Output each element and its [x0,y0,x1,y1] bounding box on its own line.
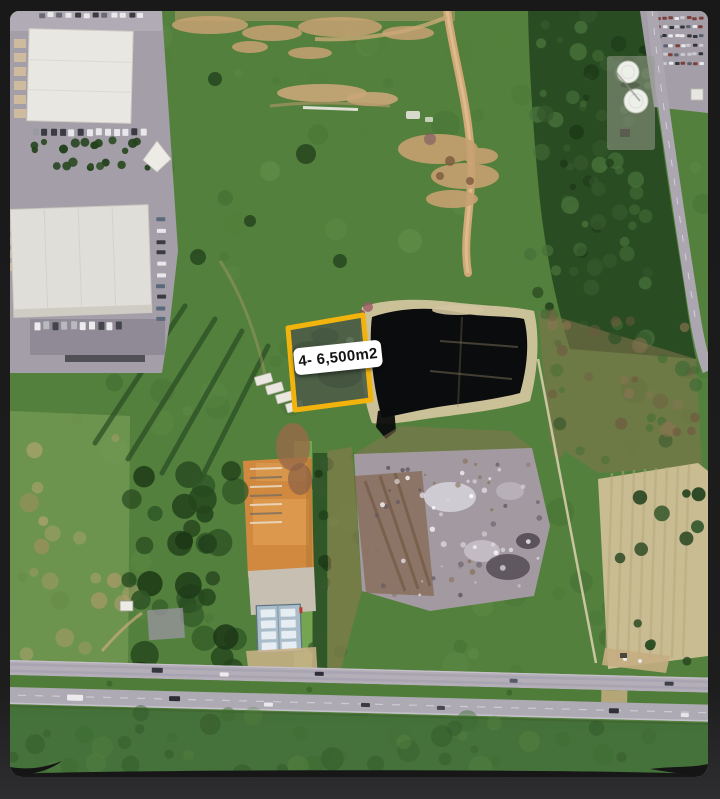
texture-dot [563,144,571,152]
texture-dot [634,542,648,556]
texture-dot [672,399,683,410]
texture-dot [521,484,526,489]
vehicle-dot [61,322,67,330]
texture-dot [590,611,605,626]
texture-dot [566,91,580,105]
texture-dot [478,475,482,479]
texture-dot [626,316,635,325]
texture-dot [629,204,640,215]
texture-dot [573,243,587,257]
texture-dot [418,489,421,492]
vehicle-dot [80,322,86,330]
texture-dot [488,477,491,480]
texture-dot [601,456,610,465]
texture-dot [641,729,657,745]
texture-dot [536,515,542,521]
texture-dot [405,467,410,472]
texture-dot [59,145,68,154]
texture-dot [559,387,565,393]
texture-dot [494,550,499,555]
texture-dot [675,361,691,377]
texture-dot [234,69,242,77]
texture-dot [270,356,282,368]
texture-dot [573,155,588,170]
texture-dot [53,162,61,170]
texture-dot [487,481,490,484]
texture-dot [122,489,142,509]
dirt-patch [276,423,310,471]
texture-dot [540,90,547,97]
texture-dot [441,565,443,567]
texture-dot [476,562,482,568]
vehicle-dot [693,44,698,47]
texture-dot [319,584,328,593]
texture-dot [43,729,51,737]
vehicle-dot [680,34,685,37]
texture-dot [482,531,487,536]
texture-dot [96,162,104,170]
texture-dot [206,571,220,585]
vehicle-dot [693,25,698,28]
texture-dot [234,155,251,172]
vehicle-dot [662,17,667,20]
texture-dot [683,657,692,666]
texture-dot [325,218,347,240]
texture-dot [682,489,691,498]
texture-dot [537,557,540,560]
texture-dot [589,720,605,736]
texture-dot [689,378,702,391]
texture-dot [20,647,34,661]
vehicle-dot [699,34,704,37]
texture-dot [218,190,233,205]
vehicle-dot [663,53,668,56]
texture-dot [407,591,411,595]
vehicle-dot [122,129,128,136]
vehicle-dot [93,13,99,18]
texture-dot [55,628,74,647]
texture-dot [432,576,436,580]
texture-dot [32,147,38,153]
texture-dot [459,567,461,569]
texture-dot [680,323,690,333]
vehicle-dot [41,129,47,136]
texture-dot [583,94,590,101]
texture-dot [91,592,108,609]
texture-dot [557,345,568,356]
texture-dot [562,321,571,330]
vehicle-dot [39,13,45,18]
texture-dot [432,506,436,510]
texture-dot [221,461,241,481]
texture-dot [20,493,39,512]
texture-dot [653,394,668,409]
vehicle-dot [111,13,117,18]
texture-dot [222,478,249,505]
vehicle-dot [141,129,147,136]
texture-dot [446,498,450,502]
parcel-area-text: 4- 6,500m2 [297,345,378,370]
texture-dot [526,463,531,468]
texture-dot [632,376,638,382]
texture-dot [536,500,540,504]
texture-dot [509,548,513,552]
texture-dot [570,184,577,191]
vehicle-dot [693,35,698,38]
texture-dot [372,578,374,580]
texture-dot [26,442,42,458]
vehicle-dot [668,44,673,47]
texture-dot [441,541,447,547]
vehicle-dot [692,52,697,55]
vehicle-dot [157,250,166,254]
texture-dot [460,471,465,476]
texture-dot [41,139,47,145]
vehicle-dot [137,13,143,18]
texture-dot [634,619,642,627]
texture-dot [449,577,455,583]
texture-dot [383,78,393,88]
texture-dot [524,248,536,260]
vehicle-dot [687,16,692,19]
vehicle-dot [663,44,668,47]
vehicle-dot [681,44,686,47]
vehicle-dot [157,295,166,299]
texture-dot [500,565,506,571]
vehicle-dot [699,17,704,20]
texture-dot [400,468,404,472]
texture-dot [511,84,532,105]
texture-dot [553,417,566,430]
texture-dot [394,479,399,484]
texture-dot [639,277,652,290]
texture-dot [375,513,379,517]
texture-dot [90,573,101,584]
vehicle-dot [681,62,686,65]
texture-dot [381,583,386,588]
texture-dot [587,261,602,276]
vehicle-dot [699,62,704,65]
texture-dot [647,639,656,648]
texture-dot [455,482,461,488]
texture-dot [418,594,421,597]
texture-dot [196,505,213,522]
texture-dot [386,466,390,470]
vehicle-dot [53,322,59,330]
vehicle-dot [699,44,704,47]
warehouse-roof-2 [10,205,152,318]
industrial-complex [10,11,178,373]
texture-dot [687,427,696,436]
curl-strip [10,770,708,777]
texture-dot [583,280,599,296]
vehicle-dot [675,62,680,65]
vehicle-dot [692,17,697,20]
texture-dot [133,705,149,721]
texture-dot [589,325,601,337]
small-building [691,89,703,100]
texture-dot [496,463,500,467]
texture-dot [294,726,309,741]
texture-dot [468,560,472,564]
vehicle-dot [698,25,703,28]
vehicle-dot [157,262,166,266]
vehicle-dot [687,62,692,65]
vehicle-dot [156,217,165,221]
texture-dot [167,733,177,743]
texture-dot [584,372,593,381]
texture-dot [492,33,512,53]
vehicle-dot [668,16,673,19]
texture-dot [487,716,502,731]
texture-dot [133,466,155,488]
texture-dot [316,487,328,499]
vehicle-dot [101,13,107,18]
texture-dot [628,221,637,230]
vehicle-dot [663,25,668,28]
texture-dot [430,527,435,532]
texture-dot [388,489,390,491]
texture-dot [468,648,479,659]
texture-dot [658,354,668,364]
texture-dot [466,480,469,483]
texture-dot [474,581,476,583]
texture-dot [107,573,122,588]
texture-dot [454,640,467,653]
texture-dot [73,531,86,544]
texture-dot [187,73,205,91]
vehicle-dot [120,13,126,18]
texture-dot [29,568,38,577]
texture-dot [458,561,464,567]
dock-yard [30,319,165,355]
vehicle-dot [687,53,692,56]
texture-dot [569,267,579,277]
vehicle-dot [68,129,74,136]
texture-dot [38,516,48,526]
texture-dot [88,163,94,169]
vehicle-dot [116,322,122,330]
vehicle-dot [157,229,166,233]
dirt-patch-2 [288,463,312,495]
texture-dot [315,421,328,434]
texture-dot [690,413,699,422]
vehicle-dot [33,129,39,136]
vehicle-dot [681,53,686,56]
texture-dot [612,204,628,220]
texture-dot [75,725,93,743]
texture-dot [470,569,476,575]
texture-dot [628,172,644,188]
texture-dot [272,76,281,85]
texture-dot [501,548,506,553]
texture-dot [439,512,443,516]
texture-dot [632,338,648,354]
texture-dot [690,162,702,174]
texture-dot [380,502,385,507]
texture-dot [691,520,704,533]
vehicle-dot [668,53,673,56]
vehicle-dot [114,129,120,136]
texture-dot [491,521,497,527]
vehicle-dot [674,53,679,56]
vehicle-dot [680,16,685,19]
vehicle-dot [668,34,673,37]
vehicle-dot [662,34,667,37]
vehicle-dot [89,322,95,330]
vehicle-dot [105,129,111,136]
texture-dot [433,482,436,485]
vehicle-dot [84,13,90,18]
texture-dot [420,492,426,498]
texture-dot [131,551,152,572]
photo-bottom-curl [10,744,708,777]
vehicle-dot [669,62,674,65]
texture-dot [447,721,462,736]
texture-dot [647,413,656,422]
vehicle-dot [675,17,680,20]
vehicle-dot [48,12,54,17]
vehicle-dot [699,52,704,55]
texture-dot [473,479,477,483]
vehicle-dot [156,317,165,321]
texture-dot [608,331,621,344]
texture-dot [491,542,495,546]
texture-dot [503,504,507,508]
texture-dot [646,391,654,399]
median-crossover [601,690,627,703]
texture-dot [463,459,468,464]
texture-dot [592,50,604,62]
texture-dot [692,487,706,501]
texture-dot [605,159,614,168]
texture-dot [615,553,626,564]
texture-dot [122,148,128,154]
texture-dot [611,36,627,52]
texture-dot [78,642,91,655]
texture-dot [405,476,410,481]
texture-dot [633,490,647,504]
texture-dot [576,446,585,455]
vehicle-dot [675,44,680,47]
texture-dot [497,468,501,472]
vehicle-dot [60,129,66,136]
vehicle-dot [87,129,93,136]
texture-dot [602,253,617,268]
texture-dot [551,265,561,275]
vehicle-dot [670,26,675,29]
texture-dot [42,573,59,590]
texture-dot [482,488,488,494]
texture-dot [611,316,622,327]
texture-dot [541,20,550,29]
texture-dot [561,196,579,214]
texture-dot [537,105,554,122]
texture-dot [460,542,466,548]
texture-dot [589,177,599,187]
texture-dot [32,482,44,494]
texture-dot [615,166,624,175]
texture-dot [109,136,117,144]
texture-dot [654,506,670,522]
texture-dot [314,632,327,645]
texture-dot [424,474,426,476]
texture-dot [646,424,654,432]
texture-dot [421,580,423,582]
texture-dot [550,364,563,377]
texture-dot [548,389,557,398]
app-root: { "image": { "kind": "aerial-satellite-p… [0,0,720,799]
texture-dot [560,160,568,168]
texture-dot [396,500,400,504]
texture-dot [200,714,221,735]
texture-dot [315,470,323,478]
texture-dot [526,539,531,544]
vehicle-dot [96,128,102,135]
texture-dot [204,613,214,623]
texture-dot [639,209,653,223]
vehicle-dot [156,307,165,311]
texture-dot [183,520,200,537]
texture-dot [596,110,608,122]
vehicle-dot [71,321,77,329]
texture-dot [45,526,61,542]
vehicle-dot [66,13,72,18]
texture-dot [213,624,238,649]
texture-dot [317,479,326,488]
texture-dot [131,590,151,610]
vehicle-dot [35,322,41,330]
texture-dot [458,593,463,598]
vehicle-dot [75,13,81,18]
texture-dot [536,38,546,48]
texture-dot [569,125,584,140]
texture-dot [68,158,77,167]
vehicle-dot [686,44,691,47]
texture-dot [308,124,328,144]
texture-dot [117,161,125,169]
vehicle-dot [106,322,112,330]
texture-dot [375,548,379,552]
gray-pad [147,608,185,640]
blue-roof-building [256,604,304,653]
texture-dot [590,214,606,230]
vehicle-dot [156,284,165,288]
vehicle-dot [686,25,691,28]
texture-dot [401,559,406,564]
texture-dot [473,545,477,549]
dark-strip [65,355,145,362]
texture-dot [570,43,587,60]
vehicle-dot [675,34,680,37]
texture-dot [359,128,367,136]
texture-dot [175,572,202,599]
vehicle-dot [51,129,57,136]
vehicle-dot [693,62,698,65]
texture-dot [136,537,154,555]
texture-dot [80,138,89,147]
vehicle-dot [43,321,49,329]
texture-dot [319,510,329,520]
texture-dot [90,142,97,149]
texture-dot [469,494,473,498]
texture-dot [112,434,120,442]
texture-dot [182,406,192,416]
texture-dot [364,549,369,554]
warehouse-roof-1 [27,29,133,124]
texture-dot [553,587,566,600]
vehicle-dot [56,13,62,18]
